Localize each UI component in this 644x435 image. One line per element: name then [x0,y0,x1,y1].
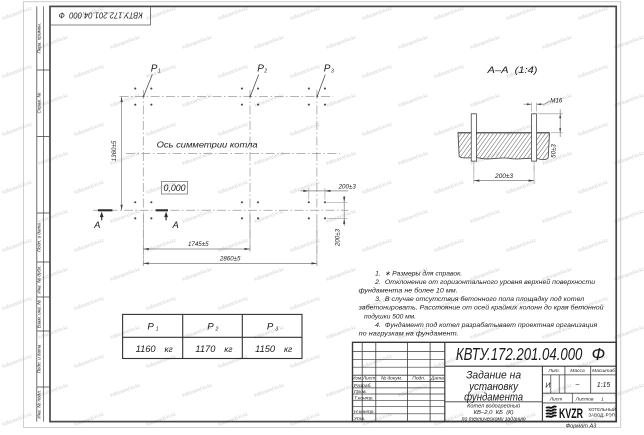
svg-text:ЗАВОД, РЭП: ЗАВОД, РЭП [589,412,615,417]
svg-text:Пров.: Пров. [354,389,367,395]
svg-text:200±3: 200±3 [494,173,513,180]
svg-text:Разраб.: Разраб. [354,383,372,389]
svg-text:Листов: Листов [575,396,594,402]
svg-text:Масса: Масса [570,368,585,374]
svg-text:Лист: Лист [362,376,376,382]
svg-text:Ось симметрии котла: Ось симметрии котла [157,141,258,150]
svg-text:1160: 1160 [136,344,157,354]
svg-text:по техническому заданию: по техническому заданию [462,416,527,422]
svg-text:2: 2 [215,327,219,333]
svg-text:P: P [324,64,331,75]
svg-text:3. В случае отсутствия бетонн: 3. В случае отсутствия бетонного пола пл… [375,295,584,303]
svg-text:Перв. примен.: Перв. примен. [37,23,42,54]
svg-text:кг: кг [284,344,293,354]
svg-text:1360±5: 1360±5 [111,140,118,161]
svg-text:1: 1 [158,69,161,75]
svg-text:Котел водогрейный: Котел водогрейный [467,403,520,410]
svg-text:KVZR: KVZR [559,406,583,421]
svg-text:фундамента: фундамента [464,392,523,404]
svg-text:Лит.: Лит. [547,368,559,374]
svg-text:1. ∗ Размеры для справок.: 1. ∗ Размеры для справок. [375,269,462,277]
svg-text:1: 1 [156,327,159,333]
svg-text:P: P [257,64,264,75]
svg-text:P: P [151,64,158,75]
svg-text:0,000: 0,000 [163,183,185,193]
svg-text:50±3: 50±3 [550,144,557,158]
svg-text:P: P [147,321,154,332]
svg-text:КВТУ.172.201.04.000 Ф: КВТУ.172.201.04.000 Ф [59,10,143,20]
svg-text:1150: 1150 [255,344,276,354]
svg-text:КОТЕЛЬНЫЙ: КОТЕЛЬНЫЙ [589,407,617,412]
svg-text:по нагрузкам на фундамент.: по нагрузкам на фундамент. [359,330,459,338]
svg-text:Изм.: Изм. [352,376,362,382]
svg-text:200±3: 200±3 [334,228,341,247]
svg-text:Т.контр.: Т.контр. [354,395,374,401]
svg-text:Взам. инв. №: Взам. инв. № [37,300,42,328]
svg-text:1170: 1170 [195,344,216,354]
svg-text:А: А [172,219,179,230]
svg-text:КВТУ.172.201.04.000: КВТУ.172.201.04.000 [456,344,583,364]
svg-text:2: 2 [263,69,267,75]
svg-text:Лист: Лист [549,396,563,402]
svg-text:А: А [93,219,100,230]
svg-text:Дата: Дата [430,376,444,382]
svg-text:3: 3 [275,327,278,333]
svg-text:Масштаб: Масштаб [592,368,615,374]
svg-text:Формат А3: Формат А3 [566,423,597,429]
svg-text:кг: кг [164,344,173,354]
svg-text:1:15: 1:15 [597,382,611,389]
svg-text:М16: М16 [550,97,563,104]
svg-text:А–А (1:4): А–А (1:4) [486,65,537,75]
svg-text:–: – [575,382,580,389]
svg-text:Справ. №: Справ. № [37,93,42,114]
svg-text:2. Отклонение от горизонтальн: 2. Отклонение от горизонтального уровня … [374,278,595,286]
svg-text:4. Фундамент под котел разраб: 4. Фундамент под котел разрабатывает про… [375,321,597,329]
svg-text:№ докум.: № докум. [381,376,403,382]
svg-text:P: P [267,321,274,332]
svg-text:200±3: 200±3 [338,184,357,191]
svg-text:P: P [207,321,214,332]
svg-text:3: 3 [331,69,334,75]
svg-text:1745±5: 1745±5 [188,241,209,248]
svg-text:Задание на: Задание на [466,370,521,382]
svg-text:Ф: Ф [592,344,606,364]
svg-text:1: 1 [601,396,604,402]
svg-text:Подп.: Подп. [412,376,425,382]
svg-text:2860±5: 2860±5 [219,255,241,262]
svg-text:Подп. и дата: Подп. и дата [37,223,42,252]
svg-text:Инв. № подл.: Инв. № подл. [37,390,42,419]
svg-text:Утв.: Утв. [354,416,365,422]
svg-text:Н.контр.: Н.контр. [354,409,375,415]
svg-text:забетонировать. Расстояние от: забетонировать. Расстояние от осей крайн… [358,304,604,312]
svg-text:Подп. и дата: Подп. и дата [37,344,42,373]
svg-text:подушки 500 мм.: подушки 500 мм. [364,312,416,320]
svg-text:Инв. № дубл.: Инв. № дубл. [37,265,42,293]
svg-text:КВ–2,0 КБ (К): КВ–2,0 КБ (К) [474,410,514,416]
svg-text:фундамента не более 10 мм.: фундамента не более 10 мм. [359,287,458,295]
svg-text:кг: кг [224,344,233,354]
